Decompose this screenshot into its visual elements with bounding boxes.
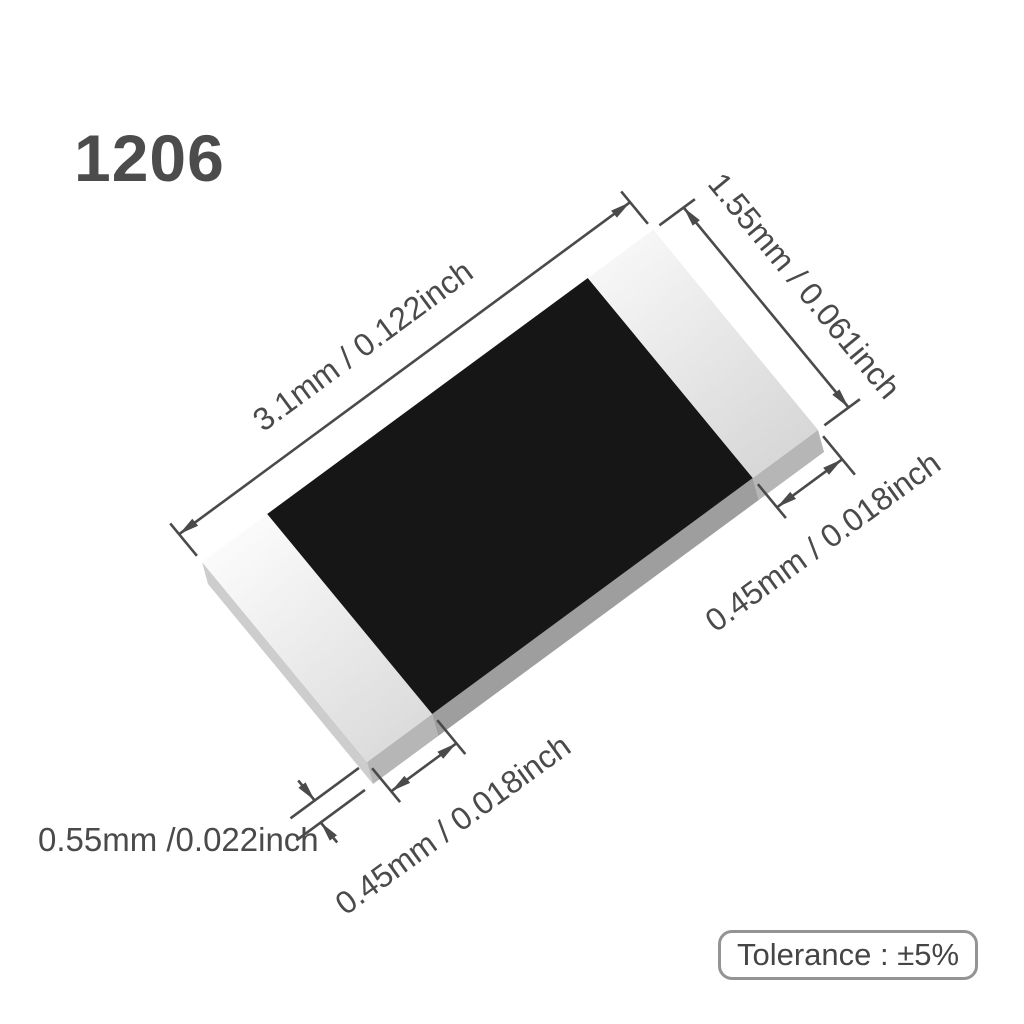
width-witness-line-bottom [824, 399, 860, 425]
tolerance-badge: Tolerance : ±5% [718, 930, 978, 980]
tolerance-label: Tolerance : ±5% [737, 937, 959, 973]
length-witness-line-left [170, 523, 197, 555]
product-dimension-diagram: 1206 [0, 0, 1024, 1024]
thickness-dimension-label: 0.55mm /0.022inch [38, 821, 319, 859]
thickness-witness-line-top [291, 768, 359, 818]
